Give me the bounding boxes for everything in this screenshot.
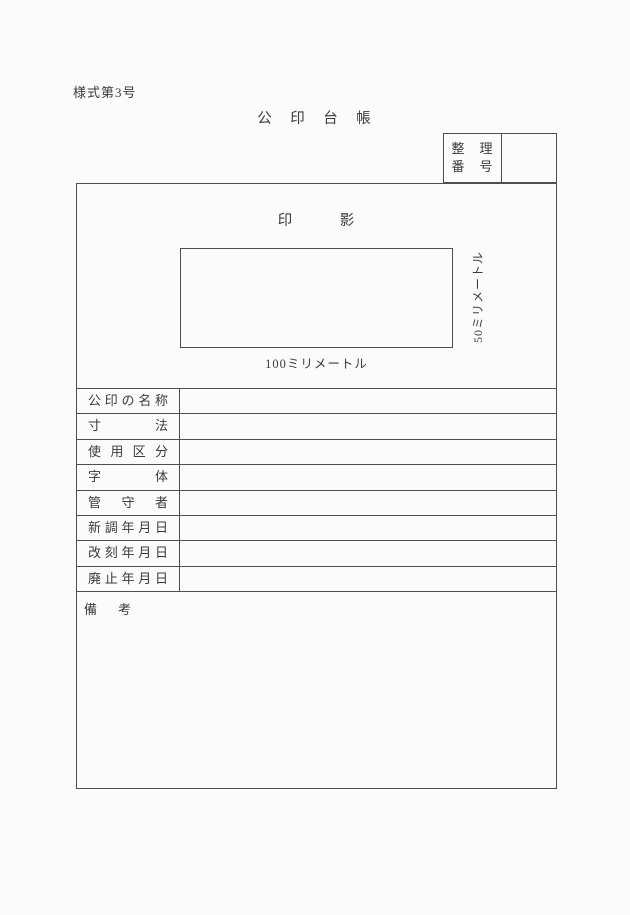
table-row-seal-name: 公印の名称: [77, 388, 556, 413]
row-value-date-made: [180, 516, 556, 540]
row-value-seal-name: [180, 389, 556, 413]
remarks-label: 備 考: [84, 599, 135, 618]
row-value-typeface: [180, 465, 556, 489]
remarks-section: 備 考: [77, 591, 556, 788]
row-label-seal-name: 公印の名称: [77, 389, 180, 413]
table-row-usage: 使用区分: [77, 439, 556, 464]
table-row-typeface: 字体: [77, 464, 556, 489]
seal-details-table: 公印の名称 寸法 使用区分 字体 管守者 新調年月日: [77, 388, 556, 591]
reference-number-label-line1: 整 理: [451, 140, 493, 158]
row-value-dimensions: [180, 414, 556, 438]
seal-width-caption: 100ミリメートル: [180, 353, 453, 372]
reference-number-label-line2: 番 号: [451, 158, 493, 176]
seal-impression-area: [180, 248, 453, 348]
row-label-usage: 使用区分: [77, 440, 180, 464]
row-label-dimensions: 寸法: [77, 414, 180, 438]
table-row-date-abolished: 廃止年月日: [77, 566, 556, 591]
row-value-date-reengraved: [180, 541, 556, 565]
seal-impression-heading: 印 影: [77, 209, 556, 230]
row-label-date-abolished: 廃止年月日: [77, 567, 180, 591]
form-number-label: 様式第3号: [73, 82, 137, 101]
seal-register-form-box: 印 影 100ミリメートル 50ミリメートル 公印の名称 寸法 使用区分 字体: [76, 183, 557, 789]
reference-number-label: 整 理 番 号: [444, 134, 502, 182]
row-value-custodian: [180, 491, 556, 515]
reference-number-value-cell: [502, 134, 556, 182]
row-label-custodian: 管守者: [77, 491, 180, 515]
row-label-typeface: 字体: [77, 465, 180, 489]
row-label-date-reengraved: 改刻年月日: [77, 541, 180, 565]
table-row-date-made: 新調年月日: [77, 515, 556, 540]
row-value-date-abolished: [180, 567, 556, 591]
row-label-date-made: 新調年月日: [77, 516, 180, 540]
table-row-date-reengraved: 改刻年月日: [77, 540, 556, 565]
row-value-usage: [180, 440, 556, 464]
table-row-dimensions: 寸法: [77, 413, 556, 438]
document-page: 様式第3号 公 印 台 帳 整 理 番 号 印 影 100ミリメートル 50ミリ…: [0, 0, 630, 915]
table-row-custodian: 管守者: [77, 490, 556, 515]
reference-number-box: 整 理 番 号: [443, 133, 557, 183]
page-title: 公 印 台 帳: [0, 107, 630, 128]
seal-height-caption: 50ミリメートル: [470, 232, 486, 362]
